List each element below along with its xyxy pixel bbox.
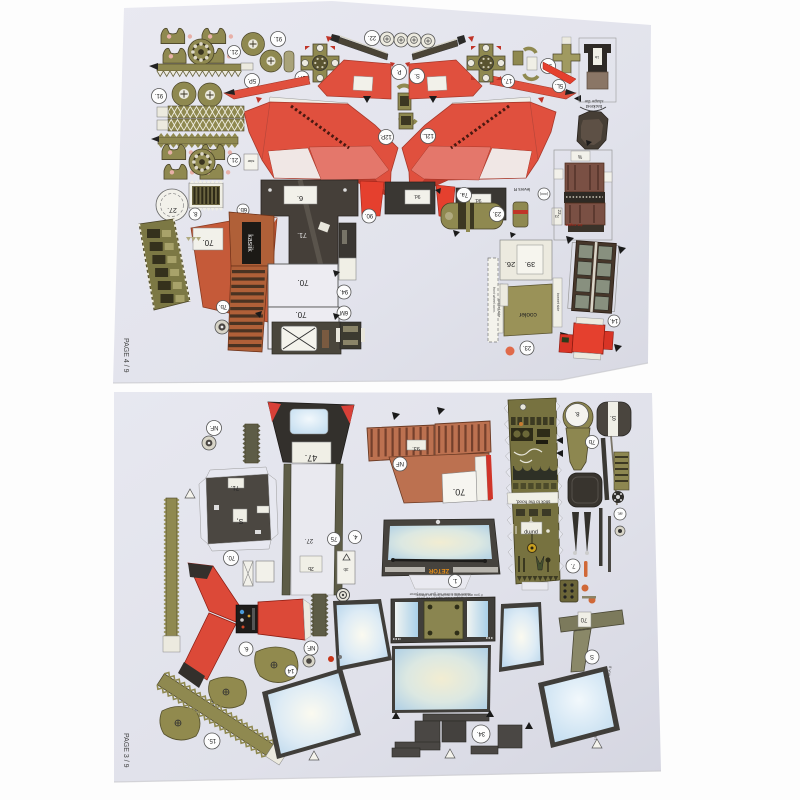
svg-text:70: 70 xyxy=(580,616,587,622)
svg-text:S.: S. xyxy=(414,72,420,78)
svg-text:6.: 6. xyxy=(243,645,248,651)
svg-text:21.: 21. xyxy=(229,48,238,54)
svg-text:6.: 6. xyxy=(297,194,303,203)
svg-text:S: S xyxy=(590,653,594,659)
svg-text:27.: 27. xyxy=(304,537,313,543)
svg-text:8.: 8. xyxy=(574,410,579,416)
svg-text:1.: 1. xyxy=(452,577,457,583)
svg-text:stick to the hood,: stick to the hood, xyxy=(516,500,551,505)
svg-text:if you are building a model wi: if you are building a model with an inte… xyxy=(415,593,482,597)
svg-text:14.: 14. xyxy=(609,317,618,323)
svg-text:39.: 39. xyxy=(525,260,535,269)
svg-text:bonnet side: bonnet side xyxy=(556,293,560,312)
svg-text:6b.: 6b. xyxy=(238,206,247,212)
svg-text:70.: 70. xyxy=(297,278,308,287)
svg-text:23: 23 xyxy=(557,209,562,215)
svg-text:9d.: 9d. xyxy=(475,197,482,203)
svg-text:12L.: 12L. xyxy=(422,132,434,138)
svg-text:91.: 91. xyxy=(273,35,282,41)
svg-text:PAGE 4 / 9: PAGE 4 / 9 xyxy=(122,338,129,373)
svg-text:17.: 17. xyxy=(503,77,512,83)
svg-text:90.: 90. xyxy=(364,212,373,218)
svg-text:kasiik: kasiik xyxy=(246,234,253,252)
svg-text:backrest: backrest xyxy=(585,104,602,109)
svg-text:7b: 7b xyxy=(588,438,595,444)
svg-text:star: star xyxy=(247,159,254,164)
svg-text:27.: 27. xyxy=(167,206,177,213)
svg-text:pump: pump xyxy=(524,529,538,535)
svg-text:4.: 4. xyxy=(352,533,357,539)
svg-text:14: 14 xyxy=(287,667,294,673)
svg-text:34.: 34. xyxy=(476,730,485,736)
svg-text:3b: 3b xyxy=(343,567,349,572)
svg-text:7.: 7. xyxy=(570,562,575,568)
svg-text:94.: 94. xyxy=(339,288,348,294)
svg-text:70.: 70. xyxy=(295,310,306,319)
svg-text:7a.: 7a. xyxy=(459,191,468,197)
svg-text:PAGE 3 / 9: PAGE 3 / 9 xyxy=(122,733,129,768)
svg-text:23: 23 xyxy=(554,214,559,219)
svg-text:21.: 21. xyxy=(229,156,238,162)
svg-text:70.: 70. xyxy=(226,554,235,560)
svg-text:9d.: 9d. xyxy=(414,193,421,199)
svg-text:(ooo): (ooo) xyxy=(540,192,548,196)
svg-text:70.: 70. xyxy=(202,238,213,247)
svg-text:47.: 47. xyxy=(305,453,318,463)
svg-text:8.: 8. xyxy=(192,210,197,216)
svg-text:22.: 22. xyxy=(367,34,376,40)
svg-text:5L.: 5L. xyxy=(554,82,563,88)
svg-text:S,: S, xyxy=(237,517,244,524)
svg-text:71.: 71. xyxy=(230,484,239,490)
svg-text:70.: 70. xyxy=(453,487,466,497)
svg-text:71.: 71. xyxy=(297,231,307,238)
svg-text:front wheel conn.: front wheel conn. xyxy=(492,287,496,313)
svg-text:levers R: levers R xyxy=(513,187,530,192)
svg-text:26.: 26. xyxy=(505,260,515,269)
svg-text:7b.: 7b. xyxy=(218,303,227,309)
svg-text:2b: 2b xyxy=(308,565,314,571)
svg-text:alt.: alt. xyxy=(617,512,622,517)
svg-text:12P.: 12P. xyxy=(380,133,392,139)
svg-text:cooler: cooler xyxy=(518,311,537,318)
svg-text:S.: S. xyxy=(610,414,616,421)
svg-text:6M: 6M xyxy=(340,309,348,315)
svg-text:91.: 91. xyxy=(154,92,163,98)
svg-text:93.: 93. xyxy=(412,445,420,451)
svg-text:ZETOR: ZETOR xyxy=(428,567,449,573)
svg-text:NF.: NF. xyxy=(306,644,315,650)
svg-text:5P.: 5P. xyxy=(248,77,257,83)
svg-text:75: 75 xyxy=(330,535,337,541)
svg-text:23.: 23. xyxy=(522,344,531,350)
svg-text:P.: P. xyxy=(396,68,401,74)
svg-text:23.: 23. xyxy=(492,210,501,216)
svg-text:NF: NF xyxy=(396,460,404,466)
svg-text:the engine: the engine xyxy=(566,223,583,227)
svg-text:1b: 1b xyxy=(594,55,599,60)
svg-text:NF.: NF. xyxy=(209,424,218,430)
svg-text:15.: 15. xyxy=(207,737,216,743)
svg-text:shape the: shape the xyxy=(584,99,603,104)
svg-text:%: % xyxy=(577,153,582,159)
